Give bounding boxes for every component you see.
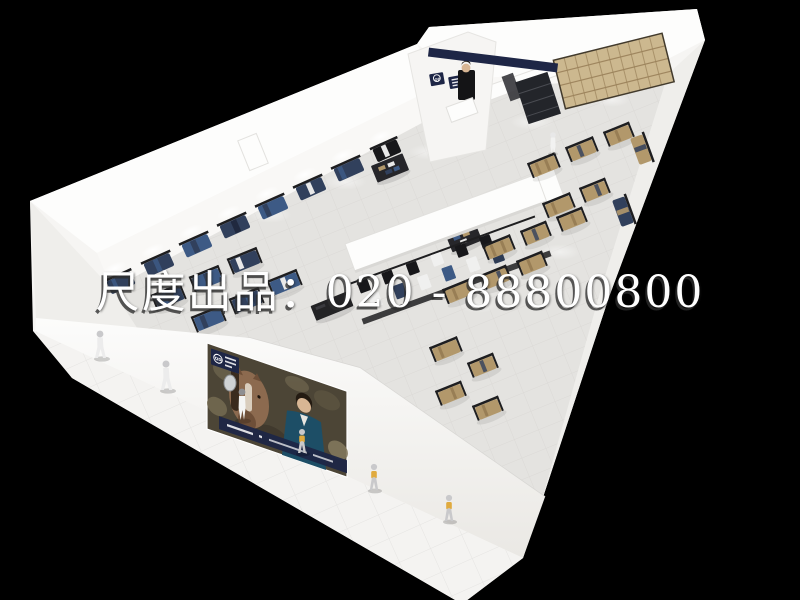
store-3d-render: QD [0,0,800,600]
wall-mirror [224,375,236,391]
scene-canvas: QD [0,0,800,600]
